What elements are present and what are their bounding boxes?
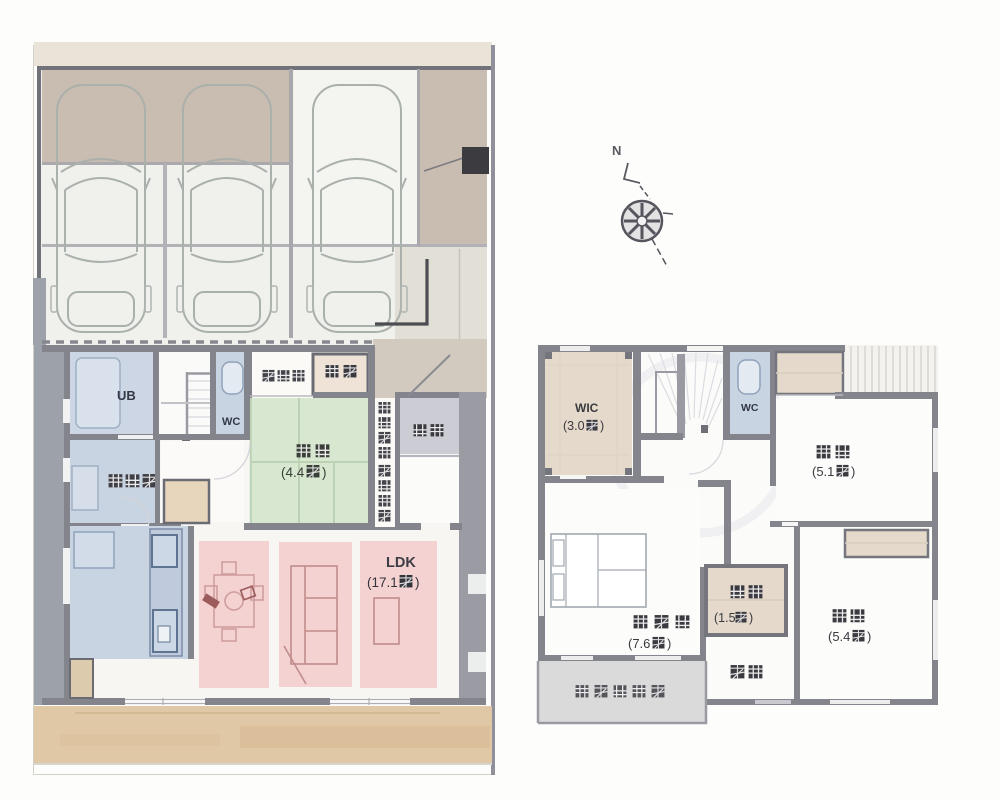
svg-text:(4.4: (4.4 xyxy=(281,465,305,480)
svg-text:(17.1: (17.1 xyxy=(367,575,398,590)
svg-text:): ) xyxy=(322,465,327,480)
svg-text:UB: UB xyxy=(117,388,136,403)
svg-text:(5.4: (5.4 xyxy=(828,629,850,644)
svg-text:WIC: WIC xyxy=(575,401,599,415)
svg-text:): ) xyxy=(867,629,871,644)
svg-text:(7.6: (7.6 xyxy=(628,636,650,651)
svg-text:): ) xyxy=(600,419,604,433)
svg-text:(5.1: (5.1 xyxy=(812,464,834,479)
svg-text:WC: WC xyxy=(741,402,759,414)
svg-text:): ) xyxy=(415,575,420,590)
svg-text:): ) xyxy=(749,611,753,625)
svg-text:): ) xyxy=(667,636,671,651)
svg-text:(1.5: (1.5 xyxy=(714,611,736,625)
svg-text:LDK: LDK xyxy=(386,555,416,571)
svg-text:): ) xyxy=(851,464,855,479)
svg-text:N: N xyxy=(612,143,621,158)
svg-text:WC: WC xyxy=(222,416,240,428)
svg-text:(3.0: (3.0 xyxy=(563,419,585,433)
